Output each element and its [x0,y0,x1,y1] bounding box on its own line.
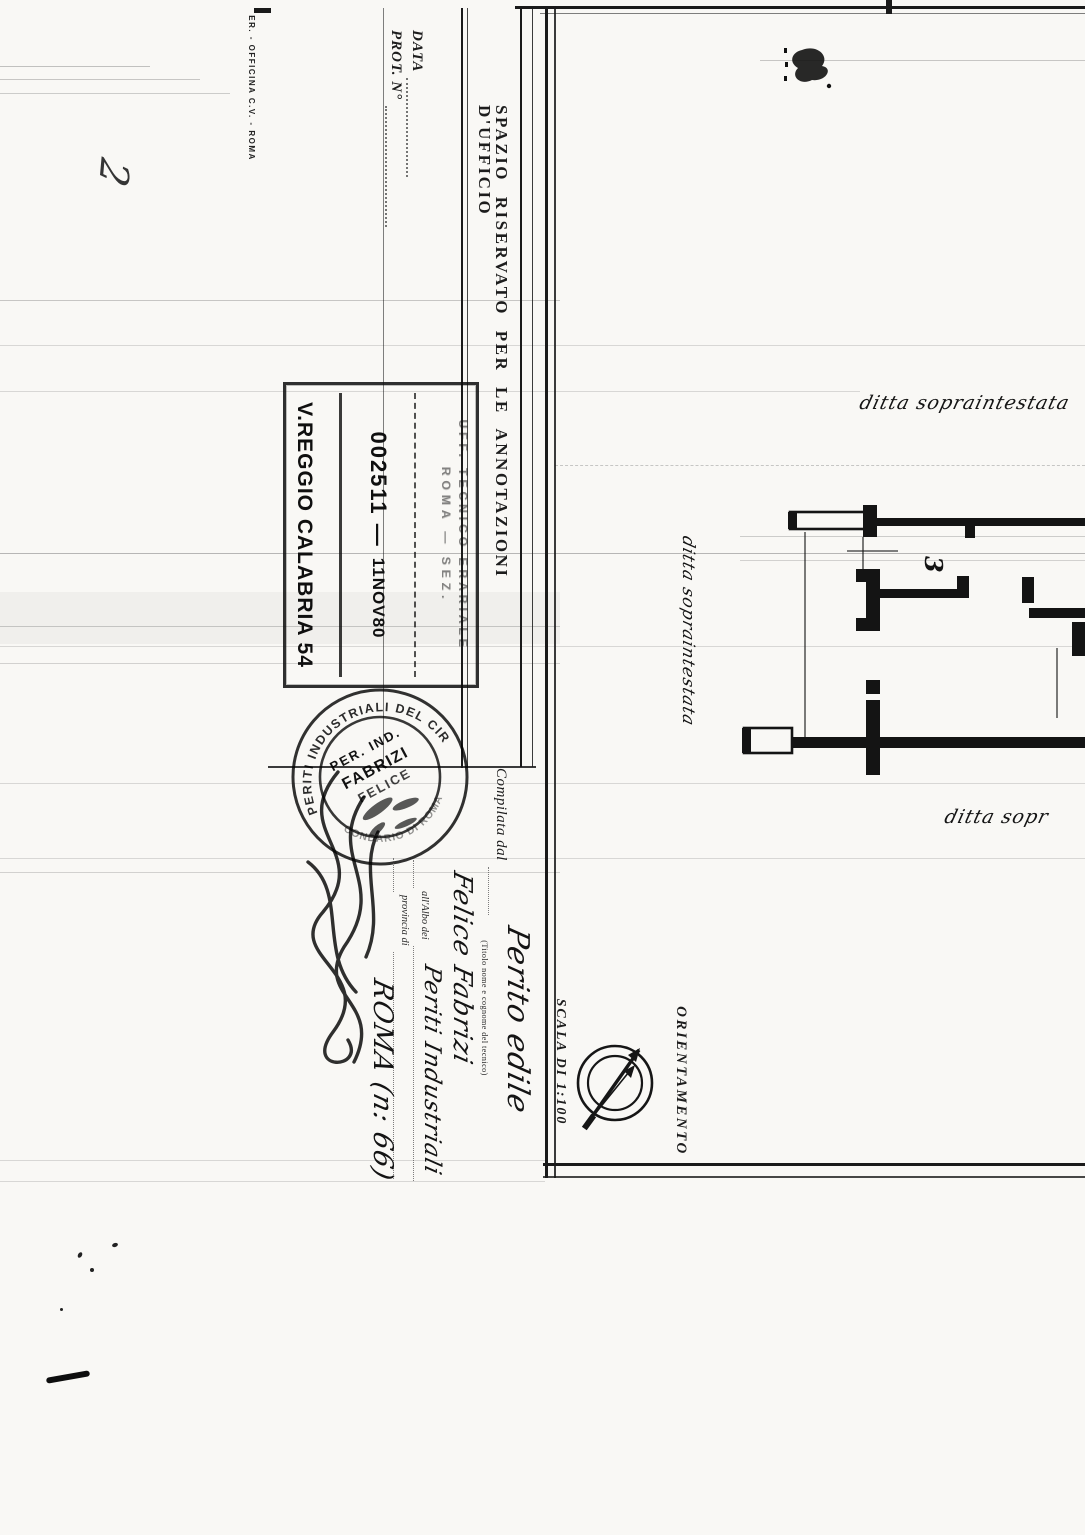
registry-office-stamp: UFF. TECNICO ERARIALE ROMA — SEZ. 002511… [283,382,479,688]
stamp-separator [414,393,416,677]
plan-frame-bottom-inner [543,1176,1085,1178]
handwritten-page-note: 2 [90,154,137,192]
register-value-handwriting: Periti Industriali [415,941,449,1199]
ink-speck [90,1268,94,1272]
stamp-separator [339,393,342,677]
date-label: DATA [409,30,424,72]
scale-label: SCALA DI 1:100 [550,977,570,1147]
scan-artifact-line [0,1181,545,1182]
form-border-vertical [532,8,533,767]
plan-frame-bottom [543,1163,1085,1166]
province-label: provincia di [399,895,410,946]
ink-speck [111,1242,118,1248]
office-annotations-title: SPAZIO RISERVATO PER LE ANNOTAZIONI D'UF… [481,105,505,665]
stamp-protocol-number: 002511 — [365,431,391,547]
stamp-date: 11NOV80 [368,558,388,639]
plan-frame-top-inner [540,13,1085,14]
printer-mark: ER. - OFFICINA C.V. - ROMA [245,7,257,169]
date-field: DATA [404,30,424,180]
plan-annotation-top: ditta sopraintestata [857,392,1084,414]
stamp-office-lines: UFF. TECNICO ERARIALE ROMA — SEZ. [439,393,470,677]
stamp-city-line: V.REGGIO CALABRIA 54 [292,393,316,677]
protocol-label: PROT. N° [388,30,403,100]
technician-name-handwriting: Felice Fabrizi [444,814,480,1123]
scan-artifact-line [0,93,230,94]
scan-artifact-line [555,465,1085,467]
scan-artifact-line [0,66,150,67]
handwritten-dash-mark [46,1370,90,1384]
plan-annotation-bottom-right: ditta sopr [942,806,1085,828]
plan-frame-left [545,6,548,1178]
plan-frame-top [515,6,1085,9]
ink-blob [782,42,842,97]
protocol-field: PROT. N° [383,30,403,230]
ink-speck [60,1308,63,1311]
date-leader-line [406,78,410,177]
register-leader [413,860,416,888]
scan-artifact-line [0,79,200,80]
qualification-handwriting: Perito edile [497,900,537,1140]
orientation-label: ORIENTAMENTO [670,991,692,1171]
stamp-protocol-row: 002511 — 11NOV80 [365,393,391,677]
form-border-vertical [520,8,522,767]
ink-speck [77,1251,83,1258]
compass-icon [573,1036,665,1132]
compiled-by-label: Compilata dal [493,768,508,861]
compiled-by-field: Compilata dal [486,768,508,918]
floor-plan-fragment: 3 [735,470,1085,790]
frame-tick [886,0,892,14]
province-value-handwriting: ROMA (n: 66) [365,956,401,1205]
room-number-label: 3 [919,556,948,573]
stamp-office-line2: ROMA — SEZ. [439,393,453,677]
register-label: all'Albo dei [419,891,430,940]
plan-annotation-side: ditta sopraintestata [675,493,701,769]
province-leader [393,858,396,892]
scanned-document-page: ER. - OFFICINA C.V. - ROMA 2 DATA PROT. … [0,0,1085,1535]
scan-artifact-line [0,858,1085,859]
scan-artifact-line [0,1160,545,1161]
stamp-office-line1: UFF. TECNICO ERARIALE [456,393,470,677]
scan-artifact-line [0,345,1085,346]
protocol-leader-line [385,106,389,227]
